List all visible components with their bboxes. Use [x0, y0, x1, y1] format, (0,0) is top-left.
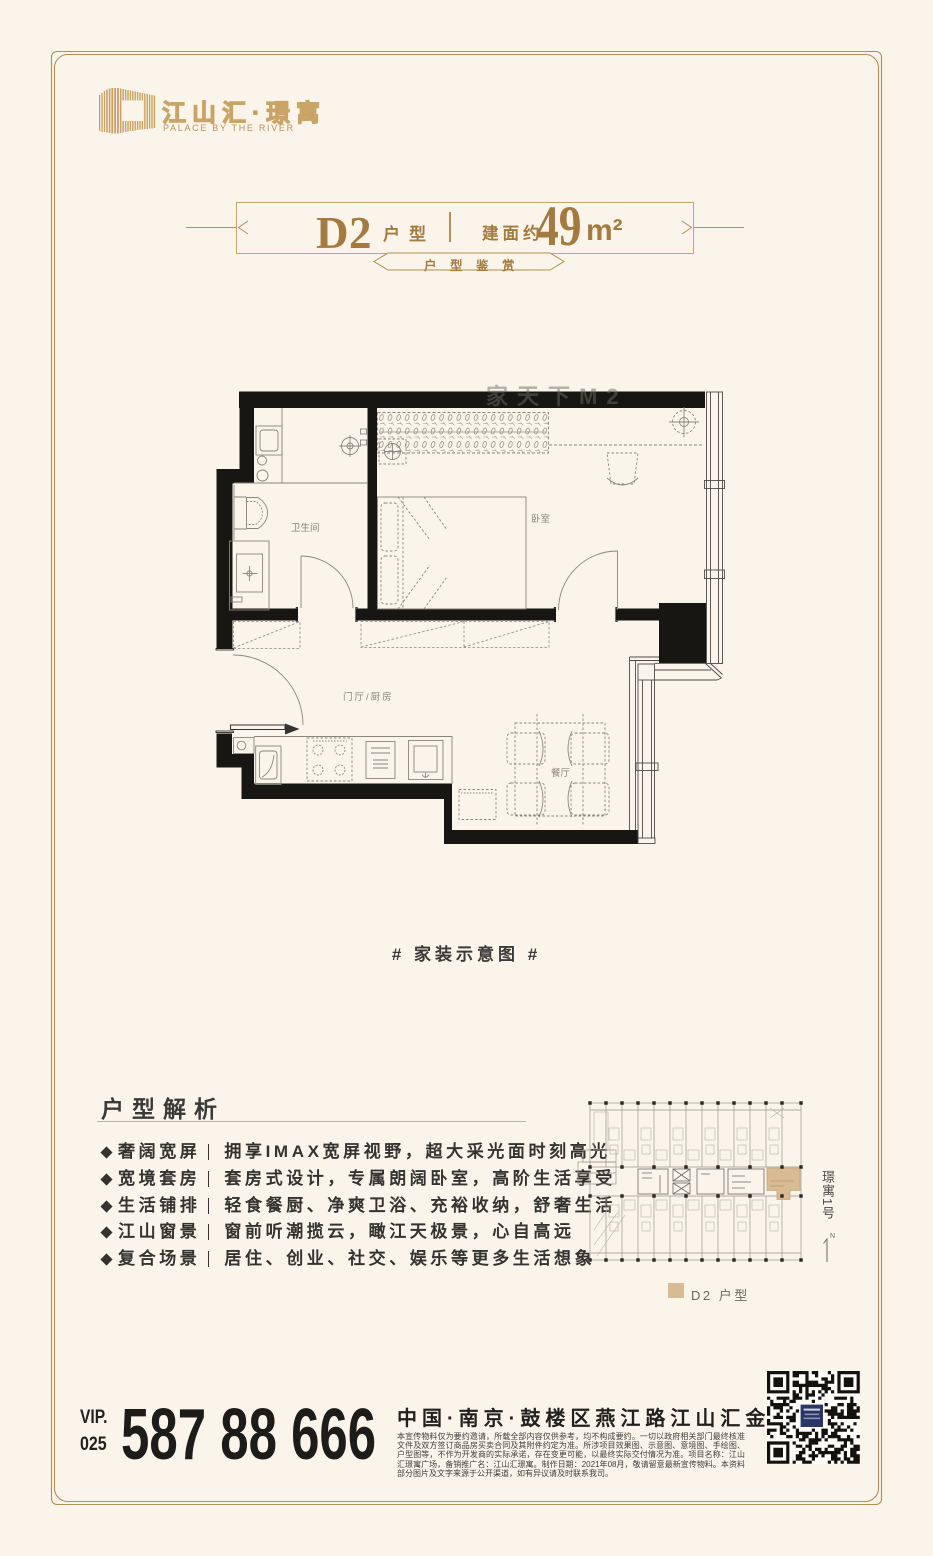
svg-text:卫生间: 卫生间: [291, 522, 320, 534]
svg-text:餐厅: 餐厅: [551, 767, 571, 779]
svg-text:N: N: [830, 1233, 835, 1240]
svg-text:家天下M2: 家天下M2: [486, 384, 628, 409]
svg-text:卧室: 卧室: [531, 513, 550, 525]
svg-text:门厅/厨房: 门厅/厨房: [343, 691, 394, 703]
